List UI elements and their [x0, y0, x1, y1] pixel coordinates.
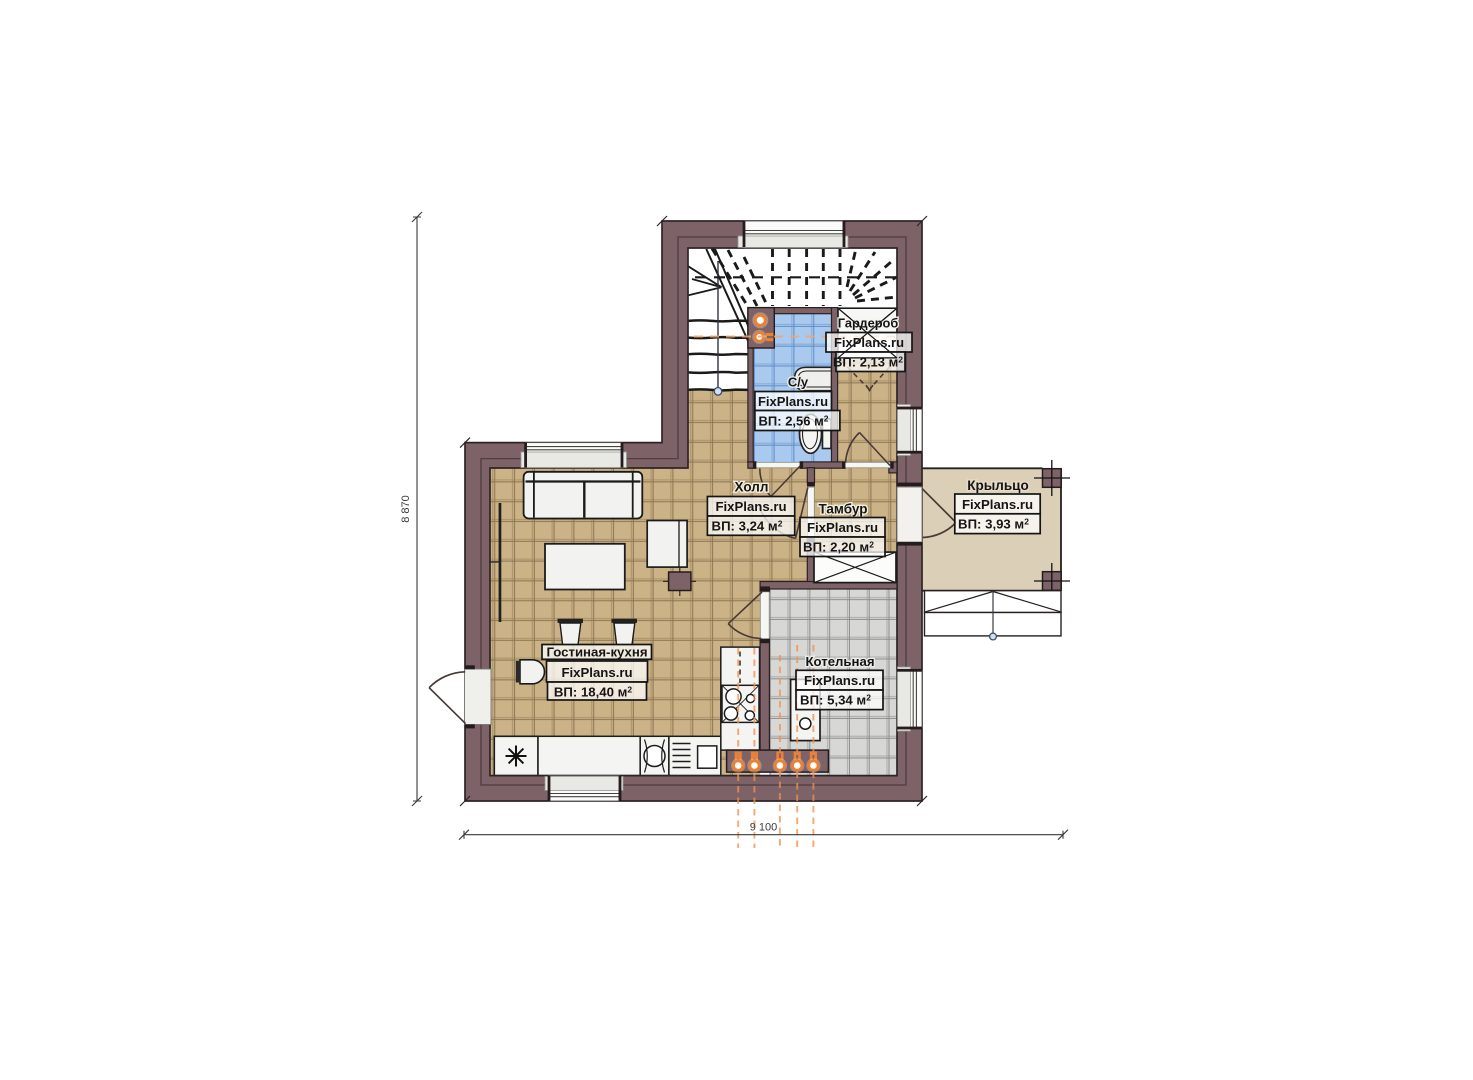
svg-text:9 100: 9 100	[750, 822, 778, 834]
svg-text:Крыльцо: Крыльцо	[967, 478, 1028, 493]
svg-text:Гардероб: Гардероб	[838, 316, 899, 331]
svg-text:8 870: 8 870	[400, 495, 412, 523]
svg-text:ВП: 2,13 м2: ВП: 2,13 м2	[833, 355, 903, 370]
svg-text:FixPlans.ru: FixPlans.ru	[834, 335, 904, 350]
svg-text:FixPlans.ru: FixPlans.ru	[758, 394, 828, 409]
svg-text:FixPlans.ru: FixPlans.ru	[715, 499, 786, 514]
svg-text:ВП: 2,56 м2: ВП: 2,56 м2	[759, 414, 829, 429]
svg-text:ВП: 18,40 м2: ВП: 18,40 м2	[554, 684, 632, 699]
svg-text:ВП: 3,93 м2: ВП: 3,93 м2	[958, 517, 1029, 532]
svg-text:С/у: С/у	[788, 375, 809, 390]
svg-text:Котельная: Котельная	[805, 654, 874, 669]
svg-text:ВП: 5,34 м2: ВП: 5,34 м2	[800, 693, 871, 708]
svg-text:FixPlans.ru: FixPlans.ru	[962, 497, 1033, 512]
svg-text:Тамбур: Тамбур	[819, 502, 868, 517]
svg-text:Холл: Холл	[735, 480, 769, 495]
svg-text:ВП: 3,24 м2: ВП: 3,24 м2	[712, 519, 783, 534]
svg-text:FixPlans.ru: FixPlans.ru	[807, 520, 878, 535]
svg-text:FixPlans.ru: FixPlans.ru	[561, 665, 632, 680]
svg-text:FixPlans.ru: FixPlans.ru	[804, 673, 875, 688]
svg-text:Гостиная-кухня: Гостиная-кухня	[546, 644, 647, 659]
svg-text:ВП: 2,20 м2: ВП: 2,20 м2	[803, 540, 874, 555]
